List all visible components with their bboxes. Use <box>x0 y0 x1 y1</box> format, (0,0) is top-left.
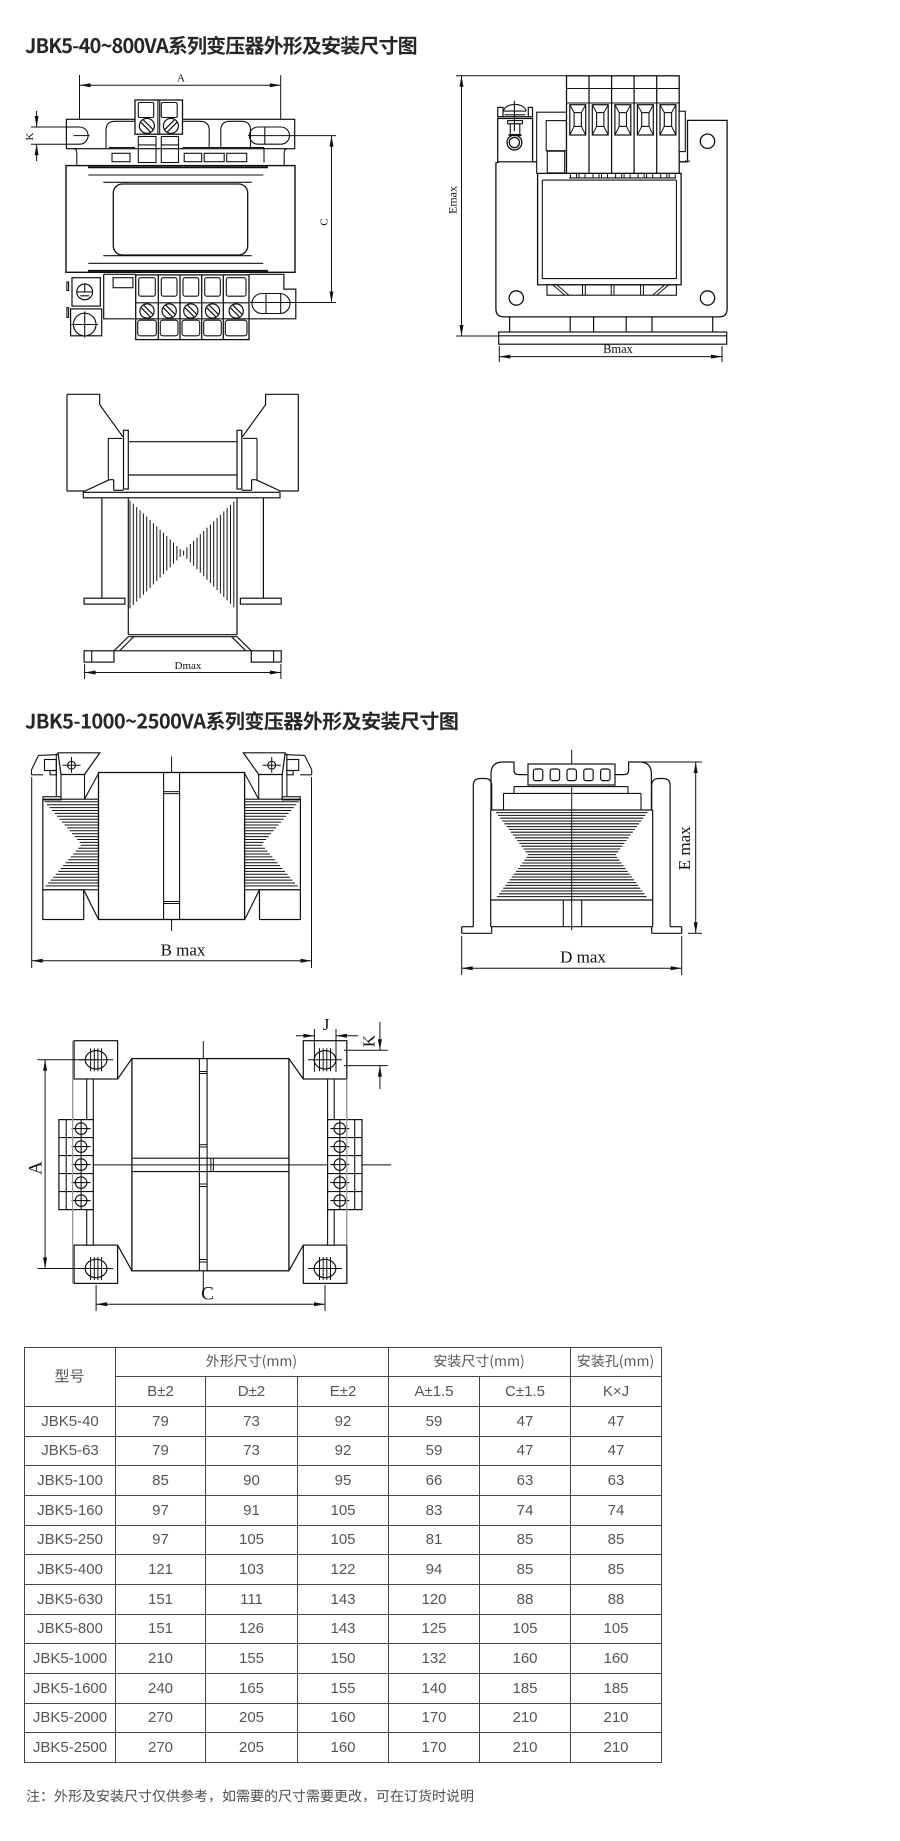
svg-text:C: C <box>319 218 331 225</box>
svg-text:J: J <box>323 1015 330 1034</box>
svg-text:D max: D max <box>560 948 606 967</box>
svg-text:Emax: Emax <box>446 186 460 214</box>
svg-text:K: K <box>360 1034 379 1047</box>
svg-text:A: A <box>177 73 185 85</box>
svg-text:E max: E max <box>675 826 694 870</box>
svg-text:Bmax: Bmax <box>603 342 634 356</box>
svg-text:Dmax: Dmax <box>175 660 202 672</box>
svg-text:C: C <box>201 1284 214 1305</box>
svg-text:K: K <box>24 132 36 140</box>
svg-text:B max: B max <box>161 941 206 960</box>
svg-text:A: A <box>26 1161 47 1175</box>
